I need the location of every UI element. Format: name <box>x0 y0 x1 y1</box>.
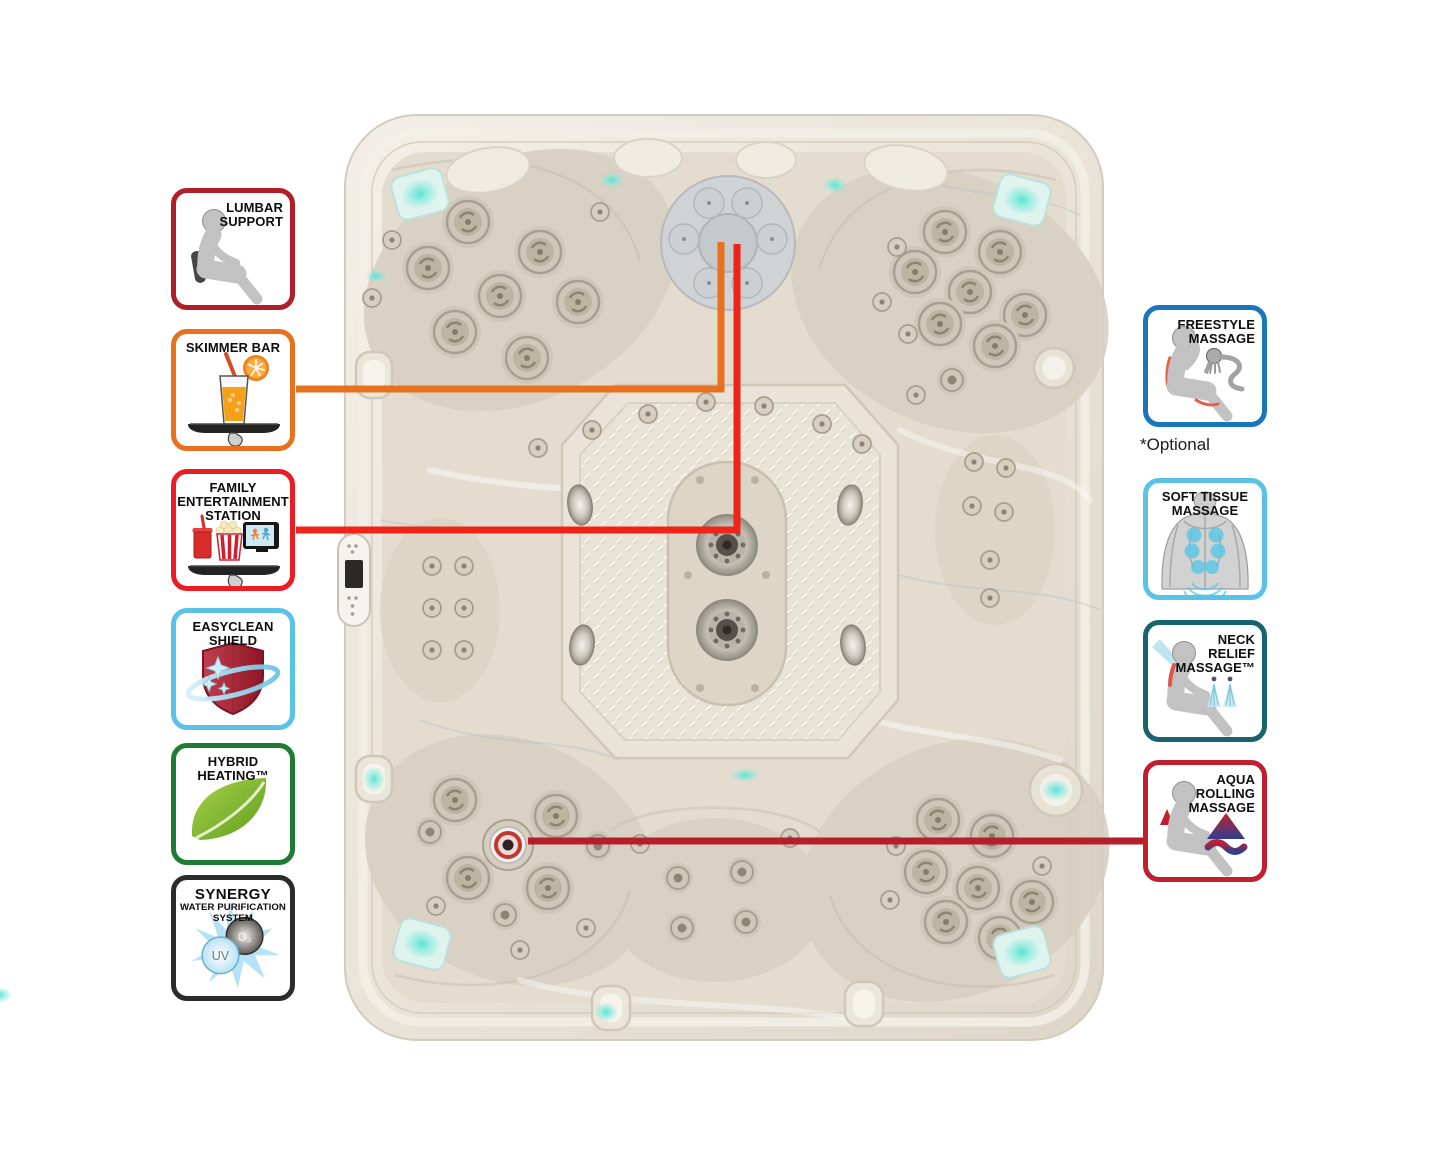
badge-label: NECK RELIEF MASSAGE™ <box>1175 633 1255 675</box>
badge-family-entertainment-station: FAMILY ENTERTAINMENT STATION <box>171 469 295 591</box>
badge-aqua-rolling-massage: AQUA ROLLING MASSAGE <box>1143 760 1267 882</box>
badge-label: AQUA ROLLING MASSAGE <box>1189 773 1255 815</box>
badge-label: SYNERGY WATER PURIFICATION SYSTEM <box>176 887 290 924</box>
badge-label: LUMBAR SUPPORT <box>219 201 283 229</box>
badge-label: EASYCLEAN SHIELD <box>176 620 290 648</box>
control-panel[interactable] <box>338 534 370 626</box>
footwell <box>562 385 898 758</box>
badge-neck-relief-massage: NECK RELIEF MASSAGE™ <box>1143 620 1267 742</box>
footwell-platform <box>668 462 786 705</box>
badge-hybrid-heating: HYBRID HEATING™ <box>171 743 295 865</box>
badge-label: FREESTYLE MASSAGE <box>1178 318 1255 346</box>
speaker-disc <box>661 176 795 310</box>
badge-soft-tissue-massage: SOFT TISSUE MASSAGE <box>1143 478 1267 600</box>
aqua-rolling-jet <box>483 820 533 870</box>
center-jet <box>697 600 757 660</box>
badge-label: SOFT TISSUE MASSAGE <box>1148 490 1262 518</box>
badge-easyclean-shield: EASYCLEAN SHIELD <box>171 608 295 730</box>
badge-label: SKIMMER BAR <box>176 341 290 355</box>
optional-note: *Optional <box>1140 435 1210 455</box>
badge-skimmer-bar: SKIMMER BAR <box>171 329 295 451</box>
badge-label: HYBRID HEATING™ <box>176 755 290 783</box>
badge-lumbar-support: LUMBAR SUPPORT <box>171 188 295 310</box>
svg-text:O₃: O₃ <box>238 932 252 944</box>
badge-label: FAMILY ENTERTAINMENT STATION <box>176 481 290 523</box>
badge-synergy-water-purification: O₃ UV SYNERGY WATER PURIFICATION SYSTEM <box>171 875 295 1001</box>
badge-freestyle-massage: FREESTYLE MASSAGE <box>1143 305 1267 427</box>
svg-text:UV: UV <box>212 949 230 963</box>
infographic-stage: LUMBAR SUPPORT SKIMMER BAR <box>0 0 1440 1152</box>
center-jet <box>697 515 757 575</box>
